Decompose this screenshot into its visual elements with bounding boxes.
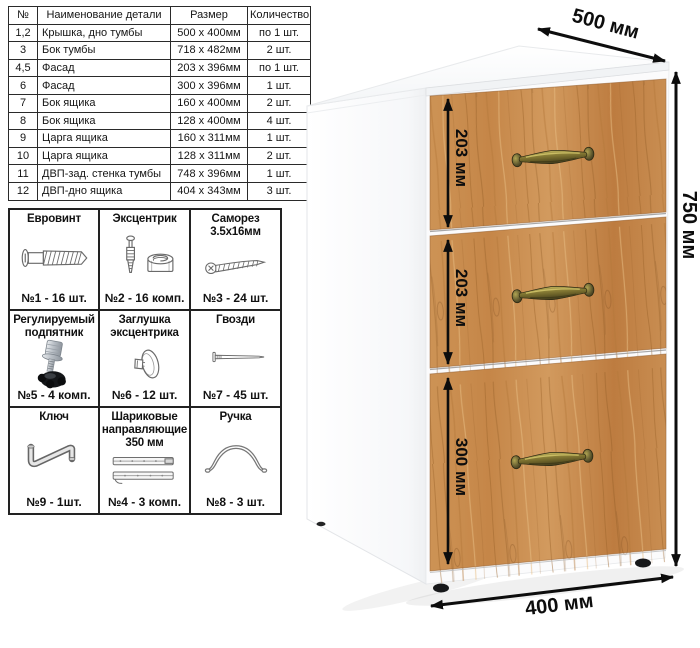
- part-name: ДВП-дно ящика: [38, 182, 171, 200]
- hardware-title: Регулируемый подпятник: [11, 314, 97, 340]
- hardware-count: №9 - 1шт.: [26, 495, 82, 509]
- hardware-cell-zaglushka: Заглушка эксцентрика №6 - 12 шт.: [99, 310, 190, 407]
- table-row: 8 Бок ящика 128 х 400мм 4 шт.: [9, 112, 311, 130]
- hardware-title: Ключ: [39, 411, 69, 424]
- part-name: Фасад: [38, 59, 171, 77]
- part-size: 160 х 400мм: [171, 94, 248, 112]
- col-header-name: Наименование детали: [38, 7, 171, 25]
- part-num: 7: [9, 94, 38, 112]
- cabinet-foot: [317, 522, 326, 526]
- page: { "parts_table": { "headers": ["№", "Наи…: [0, 0, 700, 648]
- table-row: 9 Царга ящика 160 х 311мм 1 шт.: [9, 130, 311, 148]
- part-size: 500 х 400мм: [171, 24, 248, 42]
- part-size: 718 х 482мм: [171, 42, 248, 60]
- hardware-title: Заглушка эксцентрика: [101, 314, 188, 340]
- drawer-slides-icon: [103, 450, 187, 495]
- hardware-count: №4 - 3 комп.: [108, 495, 181, 509]
- part-size: 160 х 311мм: [171, 130, 248, 148]
- part-name: Фасад: [38, 77, 171, 95]
- self-tapping-screw-icon: [194, 239, 278, 291]
- cabinet-diagram: 500 мм 750 мм 400 мм 203 мм 203 мм 300 м…: [295, 0, 700, 648]
- hardware-cell-gvozdi: Гвозди №7 - 45 шт.: [190, 310, 281, 407]
- part-size: 404 х 343мм: [171, 182, 248, 200]
- part-num: 11: [9, 165, 38, 183]
- hardware-count: №8 - 3 шт.: [206, 495, 265, 509]
- hardware-title: Шариковые направляющие 350 мм: [101, 411, 188, 450]
- part-num: 6: [9, 77, 38, 95]
- part-num: 8: [9, 112, 38, 130]
- col-header-size: Размер: [171, 7, 248, 25]
- table-row: 7 Бок ящика 160 х 400мм 2 шт.: [9, 94, 311, 112]
- hardware-cell-kluch: Ключ №9 - 1шт.: [9, 407, 99, 514]
- cabinet-side-panel: [307, 88, 426, 584]
- dim-label-drawer-middle: 203 мм: [452, 269, 471, 327]
- part-name: Бок ящика: [38, 94, 171, 112]
- hardware-title: Гвозди: [216, 314, 255, 327]
- part-size: 748 х 396мм: [171, 165, 248, 183]
- hardware-title: Евровинт: [27, 213, 81, 226]
- cam-cap-icon: [103, 340, 187, 388]
- hardware-count: №5 - 4 комп.: [17, 388, 90, 402]
- nail-icon: [194, 327, 278, 388]
- part-name: Царга ящика: [38, 130, 171, 148]
- hardware-count: №2 - 16 комп.: [105, 291, 185, 305]
- part-num: 12: [9, 182, 38, 200]
- table-row: 10 Царга ящика 128 х 311мм 2 шт.: [9, 147, 311, 165]
- hex-key-icon: [12, 424, 96, 495]
- table-row: 1,2 Крышка, дно тумбы 500 х 400мм по 1 ш…: [9, 24, 311, 42]
- parts-table: № Наименование детали Размер Количество …: [8, 6, 311, 201]
- hardware-title: Саморез 3.5х16мм: [192, 213, 279, 239]
- hardware-title: Эксцентрик: [112, 213, 176, 226]
- cam-lock-icon: [103, 226, 187, 291]
- table-row: 4,5 Фасад 203 х 396мм по 1 шт.: [9, 59, 311, 77]
- part-size: 128 х 400мм: [171, 112, 248, 130]
- part-name: Бок ящика: [38, 112, 171, 130]
- hardware-count: №1 - 16 шт.: [21, 291, 87, 305]
- part-num: 1,2: [9, 24, 38, 42]
- table-row: 11 ДВП-зад. стенка тумбы 748 х 396мм 1 ш…: [9, 165, 311, 183]
- part-name: Крышка, дно тумбы: [38, 24, 171, 42]
- dim-label-height: 750 мм: [678, 191, 700, 260]
- euro-screw-icon: [12, 226, 96, 291]
- part-size: 203 х 396мм: [171, 59, 248, 77]
- hardware-count: №3 - 24 шт.: [203, 291, 269, 305]
- table-row: 12 ДВП-дно ящика 404 х 343мм 3 шт.: [9, 182, 311, 200]
- hardware-cell-eurovint: Евровинт №1 - 16 шт.: [9, 209, 99, 310]
- table-row: 3 Бок тумбы 718 х 482мм 2 шт.: [9, 42, 311, 60]
- part-name: ДВП-зад. стенка тумбы: [38, 165, 171, 183]
- hardware-table: Евровинт №1 - 16 шт. Эксцентрик: [8, 208, 282, 515]
- part-num: 4,5: [9, 59, 38, 77]
- hardware-cell-excentric: Эксцентрик №2 - 16 комп.: [99, 209, 190, 310]
- handle-icon: [194, 424, 278, 495]
- hardware-cell-podpyatnik: Регулируемый подпятник: [9, 310, 99, 407]
- part-num: 3: [9, 42, 38, 60]
- dim-label-drawer-bottom: 300 мм: [452, 438, 471, 496]
- col-header-num: №: [9, 7, 38, 25]
- part-size: 300 х 396мм: [171, 77, 248, 95]
- hardware-cell-napravlyaushie: Шариковые направляющие 350 мм №4 - 3 ком…: [99, 407, 190, 514]
- parts-table-header-row: № Наименование детали Размер Количество: [9, 7, 311, 25]
- hardware-count: №6 - 12 шт.: [112, 388, 178, 402]
- adjustable-foot-icon: [12, 340, 96, 388]
- part-num: 10: [9, 147, 38, 165]
- table-row: 6 Фасад 300 х 396мм 1 шт.: [9, 77, 311, 95]
- cabinet-foot: [433, 584, 449, 593]
- dim-label-depth: 500 мм: [570, 5, 642, 44]
- part-num: 9: [9, 130, 38, 148]
- hardware-cell-samorez: Саморез 3.5х16мм №3 - 24 шт.: [190, 209, 281, 310]
- hardware-count: №7 - 45 шт.: [203, 388, 269, 402]
- hardware-cell-ruchka: Ручка №8 - 3 шт.: [190, 407, 281, 514]
- part-name: Бок тумбы: [38, 42, 171, 60]
- cabinet-foot: [635, 559, 651, 568]
- hardware-title: Ручка: [220, 411, 252, 424]
- part-size: 128 х 311мм: [171, 147, 248, 165]
- dim-label-drawer-top: 203 мм: [452, 129, 471, 187]
- part-name: Царга ящика: [38, 147, 171, 165]
